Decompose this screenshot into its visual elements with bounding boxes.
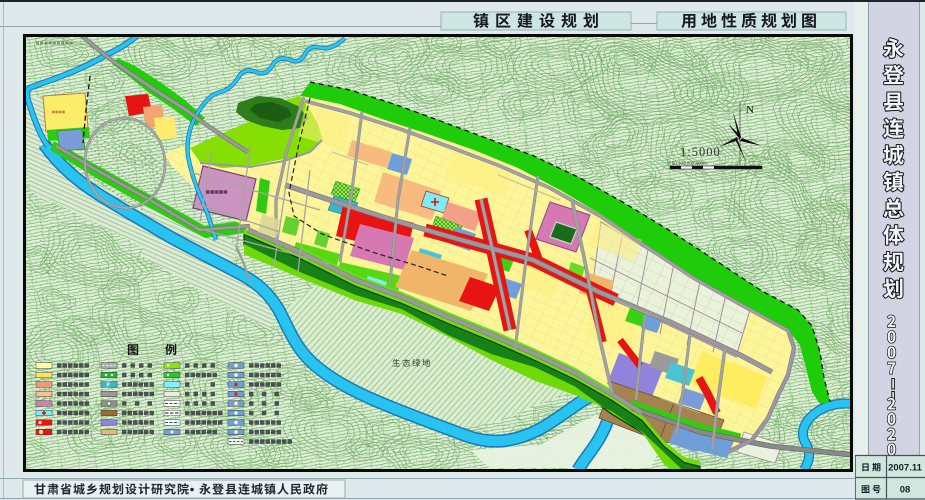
- svg-text:1:5000: 1:5000: [680, 145, 721, 159]
- svg-text:08: 08: [900, 485, 911, 496]
- svg-text:0 50 100 200 4: 0 50 100 200 400m: [668, 161, 707, 166]
- svg-text:2007.11: 2007.11: [888, 463, 923, 474]
- svg-text:N: N: [746, 104, 754, 116]
